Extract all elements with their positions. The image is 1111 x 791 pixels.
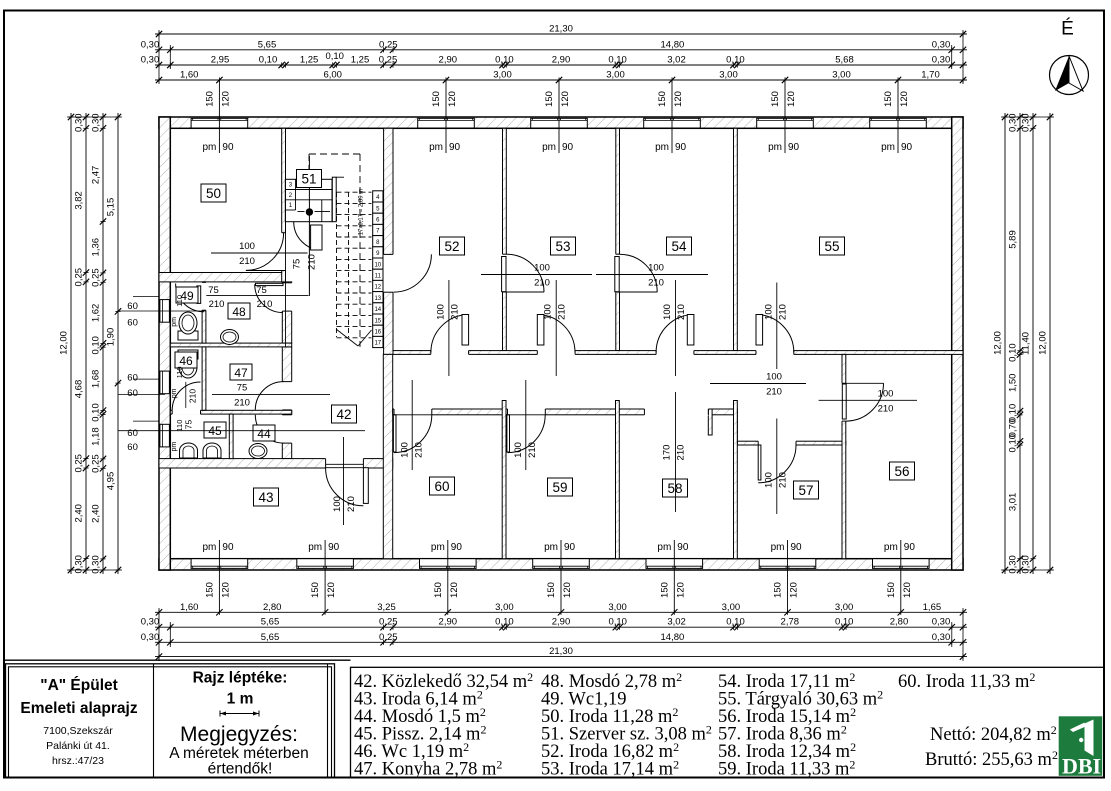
svg-text:2,80: 2,80: [890, 617, 909, 628]
svg-text:1,90: 1,90: [106, 328, 117, 347]
svg-text:60: 60: [127, 373, 138, 384]
svg-text:100: 100: [662, 304, 673, 320]
svg-text:90: 90: [222, 142, 234, 153]
svg-text:150: 150: [886, 582, 897, 598]
svg-text:2,95: 2,95: [211, 55, 230, 66]
svg-text:Rajz léptéke:: Rajz léptéke:: [193, 670, 288, 687]
svg-text:0,25: 0,25: [379, 617, 398, 628]
svg-text:A méretek méterben: A méretek méterben: [169, 745, 309, 762]
svg-text:120: 120: [673, 91, 684, 107]
svg-text:3,00: 3,00: [722, 602, 741, 613]
svg-text:120: 120: [326, 582, 337, 598]
svg-text:hrsz.:47/23: hrsz.:47/23: [52, 755, 104, 767]
svg-text:210: 210: [307, 254, 318, 270]
svg-text:47: 47: [234, 366, 248, 380]
svg-text:210: 210: [209, 299, 225, 310]
svg-text:55: 55: [824, 239, 839, 254]
svg-text:210: 210: [676, 445, 687, 461]
svg-text:É: É: [1061, 19, 1074, 40]
svg-text:0,25: 0,25: [379, 632, 398, 643]
svg-text:100: 100: [648, 263, 664, 274]
svg-text:5,65: 5,65: [258, 39, 277, 50]
svg-text:100: 100: [332, 496, 343, 512]
svg-text:100: 100: [764, 472, 775, 488]
svg-text:0,25: 0,25: [74, 268, 85, 287]
svg-text:48: 48: [232, 305, 246, 319]
svg-text:210: 210: [648, 278, 664, 289]
svg-text:100: 100: [239, 241, 255, 252]
svg-text:11,40: 11,40: [1021, 332, 1032, 355]
svg-text:75: 75: [208, 285, 219, 296]
svg-text:210: 210: [346, 496, 357, 512]
svg-text:2,40: 2,40: [91, 504, 102, 523]
svg-text:1,60: 1,60: [180, 602, 199, 613]
svg-text:1 m: 1 m: [227, 691, 254, 708]
svg-text:150: 150: [773, 582, 784, 598]
svg-text:150: 150: [204, 91, 215, 107]
svg-text:150: 150: [204, 582, 215, 598]
svg-text:1,25: 1,25: [351, 55, 370, 66]
svg-text:120: 120: [449, 582, 460, 598]
svg-text:3,00: 3,00: [493, 70, 512, 81]
svg-text:0,10: 0,10: [608, 617, 627, 628]
svg-text:90: 90: [791, 542, 803, 553]
svg-text:120: 120: [899, 91, 910, 107]
svg-text:60. Iroda 11,33 m2: 60. Iroda 11,33 m2: [898, 670, 1035, 692]
svg-text:0,30: 0,30: [74, 555, 85, 574]
svg-text:90: 90: [562, 142, 574, 153]
svg-text:3,01: 3,01: [1008, 493, 1019, 512]
svg-text:14,80: 14,80: [661, 39, 685, 50]
svg-text:0,30: 0,30: [932, 39, 951, 50]
svg-text:pm: pm: [881, 142, 895, 153]
svg-text:90: 90: [788, 142, 800, 153]
svg-text:értendők!: értendők!: [208, 761, 273, 778]
svg-text:100: 100: [543, 304, 554, 320]
svg-text:0,30: 0,30: [932, 617, 951, 628]
svg-text:3,00: 3,00: [495, 602, 514, 613]
svg-text:90: 90: [675, 142, 687, 153]
svg-text:0,10: 0,10: [835, 617, 854, 628]
svg-text:0,30: 0,30: [91, 113, 102, 132]
svg-text:150: 150: [659, 582, 670, 598]
svg-text:90: 90: [449, 142, 461, 153]
svg-text:17: 17: [374, 341, 381, 347]
svg-text:150: 150: [310, 582, 321, 598]
svg-text:54: 54: [671, 239, 687, 254]
svg-text:pm: pm: [308, 542, 322, 553]
svg-text:0,10: 0,10: [259, 55, 278, 66]
svg-text:60: 60: [127, 318, 138, 329]
svg-text:2,78: 2,78: [781, 617, 800, 628]
svg-text:100: 100: [763, 304, 774, 320]
svg-text:0,30: 0,30: [932, 55, 951, 66]
svg-text:0,30: 0,30: [141, 617, 160, 628]
svg-text:6,00: 6,00: [323, 70, 342, 81]
svg-text:"A" Épület: "A" Épület: [40, 677, 118, 694]
svg-text:150: 150: [657, 91, 668, 107]
svg-text:120: 120: [560, 91, 571, 107]
svg-text:3,02: 3,02: [667, 55, 686, 66]
svg-text:2,80: 2,80: [263, 602, 282, 613]
svg-text:50: 50: [206, 186, 221, 201]
svg-text:51: 51: [301, 171, 316, 186]
svg-text:17x0,17 = 2,89 m: 17x0,17 = 2,89 m: [359, 189, 365, 236]
svg-text:58: 58: [667, 481, 682, 496]
svg-text:0,30: 0,30: [141, 39, 160, 50]
svg-text:pm: pm: [544, 542, 558, 553]
svg-text:pm: pm: [657, 542, 671, 553]
svg-text:DBI: DBI: [1062, 754, 1101, 779]
svg-text:60: 60: [434, 479, 449, 494]
svg-text:12,00: 12,00: [59, 331, 70, 355]
svg-text:120: 120: [786, 91, 797, 107]
svg-text:0,25: 0,25: [379, 55, 398, 66]
svg-text:2,90: 2,90: [552, 55, 571, 66]
svg-text:0,10: 0,10: [91, 336, 102, 355]
svg-text:2,90: 2,90: [439, 617, 458, 628]
svg-text:90: 90: [677, 542, 689, 553]
svg-text:3,00: 3,00: [832, 70, 851, 81]
svg-text:210: 210: [878, 403, 894, 414]
svg-text:1,50: 1,50: [1008, 374, 1019, 393]
svg-text:100: 100: [878, 388, 894, 399]
svg-text:210: 210: [527, 442, 538, 458]
svg-text:100: 100: [399, 442, 410, 458]
svg-text:44: 44: [257, 427, 271, 441]
svg-text:pm: pm: [431, 542, 445, 553]
svg-text:60: 60: [127, 442, 138, 453]
svg-text:1,60: 1,60: [180, 70, 199, 81]
svg-text:0,30: 0,30: [1008, 555, 1019, 574]
svg-text:Bruttó: 255,63 m2: Bruttó: 255,63 m2: [925, 748, 1058, 770]
svg-text:3,00: 3,00: [608, 602, 627, 613]
svg-text:0,30: 0,30: [141, 55, 160, 66]
svg-text:pm: pm: [171, 317, 178, 327]
svg-text:59. Iroda 11,33 m2: 59. Iroda 11,33 m2: [718, 758, 855, 780]
svg-text:1,25: 1,25: [300, 55, 319, 66]
svg-text:90: 90: [904, 542, 916, 553]
svg-text:pm: pm: [655, 142, 669, 153]
svg-text:2,90: 2,90: [552, 617, 571, 628]
svg-text:0,10: 0,10: [726, 617, 745, 628]
svg-text:3,25: 3,25: [377, 602, 396, 613]
svg-text:0,10: 0,10: [1008, 434, 1019, 453]
svg-text:60: 60: [127, 428, 138, 439]
svg-text:0,10: 0,10: [91, 403, 102, 422]
svg-text:1,68: 1,68: [91, 370, 102, 389]
svg-text:0,30: 0,30: [141, 632, 160, 643]
svg-text:90: 90: [222, 542, 234, 553]
svg-text:1,18: 1,18: [91, 427, 102, 446]
svg-text:170: 170: [662, 445, 673, 461]
svg-text:2,47: 2,47: [91, 166, 102, 185]
svg-text:150: 150: [770, 91, 781, 107]
svg-text:43: 43: [258, 490, 273, 505]
svg-text:150: 150: [431, 91, 442, 107]
svg-text:210: 210: [257, 299, 273, 310]
svg-text:60: 60: [127, 301, 138, 312]
svg-text:12,00: 12,00: [993, 331, 1004, 355]
svg-text:210: 210: [676, 304, 687, 320]
svg-text:5,68: 5,68: [835, 55, 854, 66]
svg-text:150: 150: [546, 582, 557, 598]
svg-text:100: 100: [534, 263, 550, 274]
svg-text:100: 100: [766, 372, 782, 383]
svg-text:0,10: 0,10: [1008, 343, 1019, 362]
svg-text:210: 210: [557, 304, 568, 320]
svg-text:pm: pm: [542, 142, 556, 153]
svg-text:0,30: 0,30: [1021, 555, 1032, 574]
svg-text:0,25: 0,25: [74, 454, 85, 473]
svg-text:120: 120: [789, 582, 800, 598]
svg-text:47. Konyha 2,78 m2: 47. Konyha 2,78 m2: [354, 758, 502, 780]
svg-text:pm: pm: [171, 442, 178, 452]
svg-text:12,00: 12,00: [1038, 331, 1049, 355]
svg-text:90: 90: [328, 542, 340, 553]
svg-text:57: 57: [798, 483, 813, 498]
svg-text:0,30: 0,30: [932, 632, 951, 643]
svg-text:0,10: 0,10: [726, 55, 745, 66]
svg-text:14: 14: [374, 307, 381, 313]
svg-text:3,02: 3,02: [667, 617, 686, 628]
svg-text:210: 210: [778, 472, 789, 488]
svg-text:90: 90: [901, 142, 913, 153]
svg-text:3,00: 3,00: [719, 70, 738, 81]
svg-text:210: 210: [413, 442, 424, 458]
svg-text:60: 60: [127, 388, 138, 399]
svg-text:21,30: 21,30: [549, 24, 573, 35]
svg-text:59: 59: [552, 480, 567, 495]
svg-text:0,30: 0,30: [91, 555, 102, 574]
svg-text:pm: pm: [171, 388, 178, 398]
svg-text:210: 210: [766, 387, 782, 398]
svg-text:1,62: 1,62: [91, 304, 102, 323]
svg-text:1,70: 1,70: [921, 70, 940, 81]
svg-text:150: 150: [544, 91, 555, 107]
svg-text:100: 100: [435, 304, 446, 320]
svg-text:3,00: 3,00: [606, 70, 625, 81]
svg-text:0,10: 0,10: [325, 51, 344, 62]
svg-text:4,95: 4,95: [106, 472, 117, 491]
svg-text:2,90: 2,90: [439, 55, 458, 66]
svg-text:10: 10: [374, 262, 381, 268]
svg-text:0,30: 0,30: [74, 113, 85, 132]
svg-text:120: 120: [562, 582, 573, 598]
svg-text:75: 75: [237, 383, 248, 394]
svg-text:Nettó: 204,82 m2: Nettó: 204,82 m2: [930, 723, 1057, 745]
svg-text:0,25: 0,25: [91, 268, 102, 287]
svg-text:3,00: 3,00: [835, 602, 854, 613]
svg-text:53. Iroda 17,14 m2: 53. Iroda 17,14 m2: [541, 758, 679, 780]
svg-text:90: 90: [564, 542, 576, 553]
svg-text:210: 210: [188, 389, 198, 403]
svg-text:pm: pm: [202, 542, 216, 553]
svg-text:52: 52: [444, 239, 459, 254]
svg-text:110: 110: [175, 295, 184, 307]
svg-text:Emeleti alaprajz: Emeleti alaprajz: [20, 700, 137, 717]
svg-text:13: 13: [374, 296, 381, 302]
svg-text:4,68: 4,68: [74, 380, 85, 399]
svg-text:100: 100: [513, 442, 524, 458]
svg-text:75: 75: [292, 259, 303, 270]
svg-text:56: 56: [894, 464, 909, 479]
svg-text:120: 120: [220, 582, 231, 598]
svg-text:5,89: 5,89: [1008, 230, 1019, 249]
svg-text:0,10: 0,10: [495, 55, 514, 66]
svg-text:12: 12: [374, 285, 381, 291]
svg-text:120: 120: [220, 91, 231, 107]
svg-text:7100,Szekszár: 7100,Szekszár: [43, 725, 113, 737]
svg-text:150: 150: [883, 91, 894, 107]
svg-text:0,30: 0,30: [1008, 113, 1019, 132]
svg-text:3,82: 3,82: [74, 191, 85, 210]
svg-text:90: 90: [451, 542, 463, 553]
svg-text:5,65: 5,65: [261, 632, 280, 643]
svg-text:210: 210: [234, 398, 250, 409]
svg-text:21,30: 21,30: [549, 646, 573, 657]
svg-text:16: 16: [374, 330, 381, 336]
svg-text:75: 75: [184, 420, 194, 430]
svg-text:0,30: 0,30: [1021, 113, 1032, 132]
svg-text:210: 210: [239, 256, 255, 267]
svg-text:0,25: 0,25: [379, 39, 398, 50]
svg-text:150: 150: [433, 582, 444, 598]
svg-text:1,65: 1,65: [923, 602, 942, 613]
svg-text:210: 210: [534, 278, 550, 289]
svg-text:14,80: 14,80: [661, 632, 685, 643]
svg-text:pm: pm: [884, 542, 898, 553]
svg-text:120: 120: [675, 582, 686, 598]
svg-text:42: 42: [336, 407, 351, 422]
svg-text:pm: pm: [202, 142, 216, 153]
svg-text:210: 210: [449, 304, 460, 320]
svg-text:53: 53: [555, 239, 570, 254]
svg-text:0,10: 0,10: [495, 617, 514, 628]
svg-text:120: 120: [447, 91, 458, 107]
svg-text:210: 210: [777, 304, 788, 320]
svg-text:110: 110: [175, 366, 184, 378]
svg-text:46: 46: [179, 354, 193, 368]
svg-text:1,36: 1,36: [91, 238, 102, 257]
svg-text:11: 11: [375, 274, 382, 280]
svg-text:75: 75: [256, 285, 267, 296]
svg-text:pm: pm: [771, 542, 785, 553]
svg-text:Megjegyzés:: Megjegyzés:: [180, 723, 298, 746]
svg-text:5,15: 5,15: [106, 198, 117, 217]
svg-text:120: 120: [902, 582, 913, 598]
svg-text:5,65: 5,65: [261, 617, 280, 628]
svg-text:pm: pm: [429, 142, 443, 153]
svg-text:0,10: 0,10: [608, 55, 627, 66]
svg-text:15: 15: [374, 318, 381, 324]
svg-text:Palánki út 41.: Palánki út 41.: [46, 740, 110, 752]
svg-text:pm: pm: [768, 142, 782, 153]
svg-text:0,25: 0,25: [91, 454, 102, 473]
svg-text:2,40: 2,40: [74, 504, 85, 523]
